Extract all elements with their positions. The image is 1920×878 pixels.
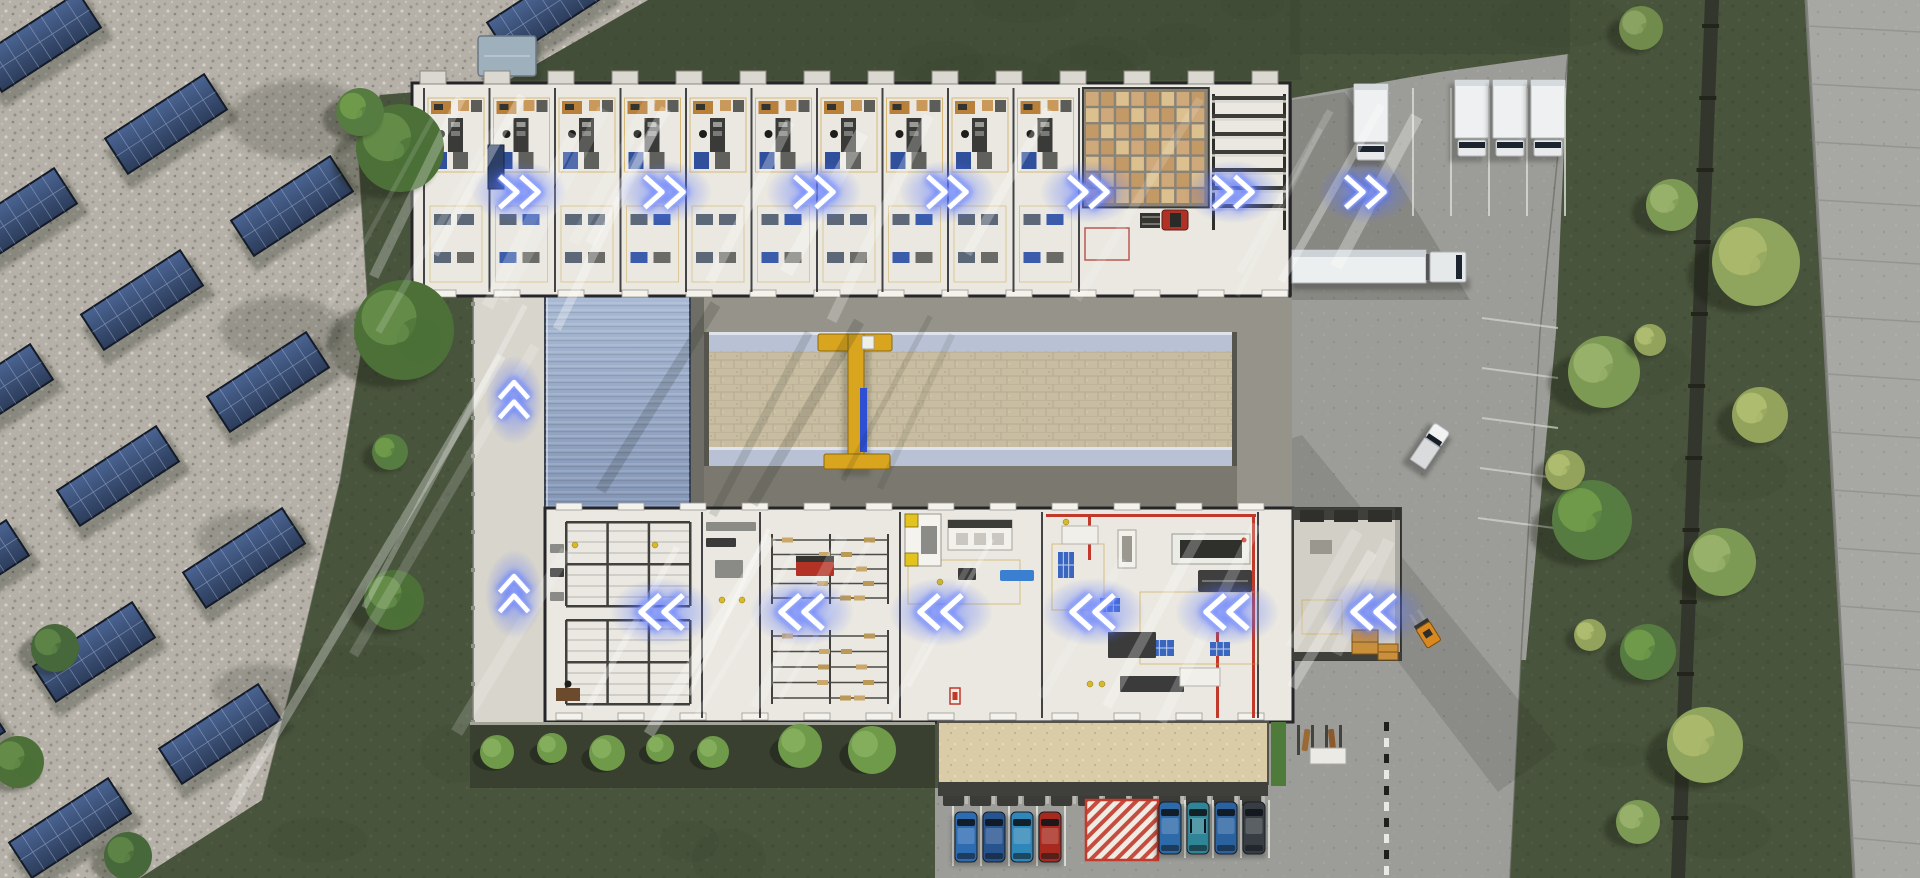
truck-stall-line (1412, 88, 1414, 216)
pipe-joint (1691, 312, 1708, 316)
machine-panel (844, 131, 853, 136)
cabinet (471, 100, 482, 112)
pipe-joint (1694, 240, 1711, 244)
windshield (1041, 819, 1059, 826)
truck-box (1493, 80, 1527, 138)
staging-mat (654, 252, 671, 263)
machine-yellow-fixtures (905, 514, 941, 566)
pallet-cage-cell (1086, 141, 1099, 155)
pipe-joint (1696, 168, 1713, 172)
machine-panel (1041, 131, 1050, 136)
canopy-spot (121, 852, 131, 862)
roof-beam-stub (484, 71, 510, 84)
rear-window (1245, 845, 1263, 851)
roof-beam-stub (676, 71, 702, 84)
flow-arrow-up (485, 550, 543, 638)
machine-panel (975, 131, 984, 136)
stored-material (817, 680, 828, 685)
side-table (720, 100, 731, 111)
crane-trolley (862, 336, 874, 349)
staging-mat (762, 252, 779, 263)
car-roof (958, 828, 975, 844)
pallet-cage-cell (1116, 141, 1129, 155)
roof-beam-stub (1252, 71, 1278, 84)
grass-mottle (1583, 742, 1649, 768)
car-roof (1246, 818, 1263, 834)
gray-mat (453, 152, 468, 169)
staging-mat (696, 252, 713, 263)
canopy-spot (1580, 514, 1596, 530)
office-chair (830, 130, 838, 138)
dock-bumper (1006, 290, 1032, 297)
machine-panel (713, 131, 722, 136)
curb-dash (1384, 802, 1389, 811)
machine-slot (956, 533, 968, 545)
car-roof (1014, 828, 1031, 844)
gray-equipment (706, 522, 756, 531)
pallet-cage-cell (1086, 92, 1099, 106)
dock-bumper (1052, 713, 1078, 720)
pallet-cage-cell (1162, 173, 1175, 187)
parked-car (979, 812, 1006, 866)
roof-beam-stub (932, 71, 958, 84)
office-chair (699, 130, 707, 138)
machine-panel (844, 122, 853, 127)
blue-mat (694, 152, 709, 169)
canopy-spot (1664, 201, 1674, 211)
stored-material (854, 696, 865, 701)
windshield (1497, 142, 1523, 148)
staging-mat (916, 252, 933, 263)
truck-box (1531, 80, 1565, 138)
machine-slot (992, 533, 1004, 545)
rack-shelf (1212, 154, 1286, 157)
pallet-cage-cell (1101, 108, 1114, 122)
parked-car (1155, 802, 1182, 858)
machine-panel (975, 122, 984, 127)
flow-arrow-left (750, 578, 854, 646)
pallet-cage-cell (1177, 92, 1190, 106)
facility-scene (0, 0, 1920, 878)
cabinet (995, 100, 1006, 112)
fence-post (471, 378, 475, 382)
fence-post (471, 568, 475, 572)
dock-bumper (1052, 503, 1078, 510)
red-safety-wall-line (1046, 514, 1256, 517)
pipe-joint (1671, 816, 1688, 820)
roof-beam-stub (1188, 71, 1214, 84)
pallet-cage-cell (1192, 124, 1205, 138)
aerial-facility-render (0, 0, 1920, 878)
canopy-spot (1559, 467, 1567, 475)
cabinet (930, 100, 941, 112)
fire-point (950, 688, 960, 704)
pipe-joint (1699, 96, 1716, 100)
dock-bumper (1114, 503, 1140, 510)
dock-bumper (990, 503, 1016, 510)
staging-mat (981, 252, 998, 263)
rack-rail (566, 521, 690, 524)
dock-bumper (1198, 290, 1224, 297)
fence-post (471, 682, 475, 686)
rack-shelf (1212, 118, 1286, 121)
dock-bumper (556, 713, 582, 720)
cantilever-rack-bar (1212, 96, 1286, 100)
flow-arrow-left (1322, 578, 1426, 646)
cantilever-rack-bar (1212, 150, 1286, 154)
staging-mat (850, 214, 867, 225)
flow-arrow-right (1185, 161, 1281, 224)
side-table (524, 100, 535, 111)
stored-material (819, 649, 830, 654)
desk-equipment (565, 104, 574, 110)
desk-equipment (631, 104, 640, 110)
curb-dash (1384, 850, 1389, 859)
curb-dash (1384, 770, 1389, 779)
windshield (1456, 255, 1462, 279)
pipe-joint (1680, 600, 1697, 604)
pallet-stack (1378, 644, 1398, 660)
pallet-cage-cell (1086, 108, 1099, 122)
desk-equipment (958, 104, 967, 110)
fence-post (471, 530, 475, 534)
rack-shelf (1212, 136, 1286, 139)
roof-beam-stub (868, 71, 894, 84)
pallet-cage-cell (1192, 141, 1205, 155)
dock-bumper (742, 713, 768, 720)
machine-slot (974, 533, 986, 545)
canopy-spot (1631, 819, 1640, 828)
car-roof (1042, 828, 1059, 844)
pallet-cage-cell (1131, 141, 1144, 155)
canopy-spot (48, 644, 58, 654)
pallet-cage-cell (1177, 157, 1190, 171)
truck-box (1354, 84, 1388, 142)
entrance-building-roof (938, 722, 1268, 784)
side-table (786, 100, 797, 111)
dock-leveler (1368, 510, 1392, 522)
car-roof (1190, 818, 1207, 834)
dock-bumper (1238, 713, 1264, 720)
pallet-cage-cell (1162, 124, 1175, 138)
dock-bumper (1238, 503, 1264, 510)
gray-equipment (550, 592, 564, 601)
pallet-cage-cell (1162, 108, 1175, 122)
dock-bumper (928, 713, 954, 720)
flow-arrow-left (1175, 578, 1279, 646)
pallet-cage-cell (1116, 108, 1129, 122)
office-chair (765, 130, 773, 138)
yellow-marker (1087, 681, 1093, 687)
canopy-spot (1743, 255, 1761, 273)
rear-window (985, 853, 1003, 859)
machine-panel (910, 122, 919, 127)
canopy-spot (1752, 411, 1763, 422)
machine-center (1122, 536, 1132, 562)
pipe-joint (1683, 528, 1700, 532)
bush-highlight (592, 739, 612, 759)
staging-mat (893, 252, 910, 263)
pallet-cage-cell (1101, 141, 1114, 155)
grass-mottle (268, 818, 367, 863)
canopy-spot (1640, 648, 1651, 659)
staging-mat (762, 214, 779, 225)
stored-material (864, 538, 875, 543)
cabinet (799, 100, 810, 112)
flow-arrow-left (1041, 578, 1145, 646)
roof-beam-stub (1060, 71, 1086, 84)
cabinet (733, 100, 744, 112)
parked-box-truck (1449, 80, 1489, 162)
curb-dash (1384, 722, 1389, 731)
windshield (957, 819, 975, 826)
stored-material (841, 552, 852, 557)
windshield (985, 819, 1003, 826)
machine-panel (451, 131, 460, 136)
dock-bumper (866, 713, 892, 720)
yellow-marker (572, 542, 578, 548)
flow-arrow-right (899, 161, 995, 224)
dock-bumper (556, 503, 582, 510)
curb-dash (1384, 818, 1389, 827)
dark-equipment (706, 538, 736, 547)
dock-bumper (928, 503, 954, 510)
fence-post (471, 644, 475, 648)
dock-bumper (804, 503, 830, 510)
stored-material (856, 665, 867, 670)
north-apron (690, 296, 1240, 332)
flow-arrow-right (1317, 161, 1413, 224)
yellow-marker (652, 542, 658, 548)
flow-arrow-up (485, 356, 543, 444)
bay-wall (1013, 88, 1015, 292)
pipe-joint (1702, 24, 1719, 28)
bike-rack-post (1297, 725, 1300, 755)
pallet-cage-cell (1146, 124, 1159, 138)
fence-post (471, 302, 475, 306)
rack-canopy (1310, 748, 1346, 764)
garden-curb (470, 722, 935, 725)
dock-leveler (1300, 510, 1324, 522)
dock-bumper (618, 713, 644, 720)
yard-end-cap (1232, 332, 1237, 466)
rear-window (1013, 853, 1031, 859)
curb-dash (1384, 786, 1389, 795)
truck-box-front (1354, 84, 1388, 90)
staging-mat (457, 252, 474, 263)
office-chair (961, 130, 969, 138)
cantilever-rack-bar (1212, 114, 1286, 118)
bush-highlight (539, 736, 556, 753)
gray-mat (1043, 152, 1058, 169)
staging-mat (893, 214, 910, 225)
staging-mat (631, 252, 648, 263)
parked-car (1007, 812, 1034, 866)
canopy-spot (1712, 557, 1726, 571)
canopy-spot (385, 449, 392, 456)
parking-stall-line (1268, 800, 1270, 858)
fence-post (471, 416, 475, 420)
trailer-gap (1426, 254, 1430, 280)
pallet-cage-cell (1086, 124, 1099, 138)
office-chair (896, 130, 904, 138)
desk-equipment (762, 104, 771, 110)
flow-arrow-left (610, 578, 714, 646)
blue-bin-pallet (1058, 552, 1074, 578)
pallet-cage-cell (1146, 141, 1159, 155)
rear-window (1161, 845, 1179, 851)
pallet-cage-cell (1101, 124, 1114, 138)
staging-mat (719, 214, 736, 225)
yellow-block (905, 553, 918, 566)
bay-wall (882, 88, 884, 292)
roof-beam-stub (548, 71, 574, 84)
parking-stall-line (1064, 806, 1066, 866)
flow-arrow-right (471, 161, 567, 224)
pallet-cage-cell (1131, 157, 1144, 171)
machine-panel (517, 131, 526, 136)
car-roof (1162, 818, 1179, 834)
flow-arrow-right (766, 161, 862, 224)
dock-bumper (750, 290, 776, 297)
semi-truck (1292, 250, 1470, 290)
desk-equipment (827, 104, 836, 110)
trailer-edge (1292, 250, 1426, 257)
paver-strip (704, 351, 1237, 447)
stored-material (863, 581, 874, 586)
flow-arrow-left (889, 578, 993, 646)
cabinet (1061, 100, 1072, 112)
curb-dash (1384, 834, 1389, 843)
roof-beam-stub (804, 71, 830, 84)
windshield (1245, 809, 1263, 816)
dock-bumper (1176, 503, 1202, 510)
windshield (1459, 142, 1485, 148)
dock-bumper (618, 503, 644, 510)
yellow-marker (1063, 519, 1069, 525)
red-forklift (1140, 210, 1188, 230)
parked-car (1183, 802, 1210, 858)
machine-panel (517, 122, 526, 127)
fence-post (471, 492, 475, 496)
desk-equipment (500, 104, 509, 110)
forklift-cab (1170, 213, 1181, 227)
cabinet (864, 100, 875, 112)
stored-material (863, 680, 874, 685)
bush-highlight (648, 737, 663, 752)
machine-center (921, 526, 937, 554)
windshield (1161, 809, 1179, 816)
staging-mat (958, 252, 975, 263)
fence-post (471, 340, 475, 344)
desk-equipment (696, 104, 705, 110)
pallet-cage-cell (1116, 92, 1129, 106)
yellow-marker (1099, 681, 1105, 687)
pallet-cage-cell (1101, 92, 1114, 106)
pipe-joint (1685, 456, 1702, 460)
dock-bumper (804, 713, 830, 720)
curb-dash (1384, 738, 1389, 747)
bush-highlight (781, 728, 805, 752)
parked-car (1035, 812, 1062, 866)
stored-material (840, 696, 851, 701)
stored-material (782, 538, 793, 543)
machine-white (948, 520, 1012, 550)
east-apron (1237, 296, 1292, 508)
truck-box (1455, 80, 1489, 138)
cabinet (537, 100, 548, 112)
dock-bumper (1134, 290, 1160, 297)
entrance-area (470, 722, 1346, 796)
parked-box-truck (1525, 80, 1565, 162)
forklift-load (1140, 213, 1160, 228)
no-parking-hatch-zone (1086, 800, 1158, 860)
dock-bumper (866, 503, 892, 510)
roof-beam-stub (420, 71, 446, 84)
staging-mat (565, 252, 582, 263)
canopy-spot (1645, 338, 1651, 344)
canopy-spot (10, 758, 20, 768)
dock-bumper (990, 713, 1016, 720)
dock-bumper (686, 290, 712, 297)
canopy-spot (389, 323, 409, 343)
machine-panel (713, 122, 722, 127)
dock-bumper (622, 290, 648, 297)
curb-dash (1384, 866, 1389, 875)
staging-mat (1024, 214, 1041, 225)
rear-window (957, 853, 975, 859)
car-roof (1218, 818, 1235, 834)
entrance-front-band (938, 782, 1268, 796)
blue-mat (1000, 570, 1034, 581)
dock-bumper (1176, 713, 1202, 720)
rear-window (1189, 845, 1207, 851)
flow-arrow-right (1040, 161, 1136, 224)
bush-highlight (852, 731, 878, 757)
truck-box-front (1531, 80, 1565, 86)
parked-car (951, 812, 978, 866)
grass-mottle (1146, 23, 1212, 58)
pallet-cage-cell (1116, 124, 1129, 138)
staging-mat (827, 252, 844, 263)
rear-window (1041, 853, 1059, 859)
desk-equipment (434, 104, 443, 110)
dock-leveler (1334, 510, 1358, 522)
roof-beam-stub (612, 71, 638, 84)
yard-end-cap (704, 332, 709, 466)
dock-bumper (1262, 290, 1288, 297)
runway-highlight (704, 332, 1237, 335)
stored-material (854, 596, 865, 601)
canopy-spot (353, 108, 363, 118)
windshield (1013, 819, 1031, 826)
pipe-joint (1688, 384, 1705, 388)
pallet-cage-cell (1131, 92, 1144, 106)
dock-bumper (680, 503, 706, 510)
truck-box-front (1455, 80, 1489, 86)
pallet-cage-cell (1162, 92, 1175, 106)
chair (565, 681, 572, 688)
work-table (1062, 526, 1098, 544)
cantilever-rack-bar (1212, 132, 1286, 136)
curb-dash (1384, 754, 1389, 763)
dock-equipment (1310, 540, 1332, 554)
gray-mat (715, 152, 730, 169)
pallet-cage-cell (1177, 141, 1190, 155)
canopy-spot (387, 141, 405, 159)
windshield (1535, 142, 1561, 148)
stored-material (864, 634, 875, 639)
